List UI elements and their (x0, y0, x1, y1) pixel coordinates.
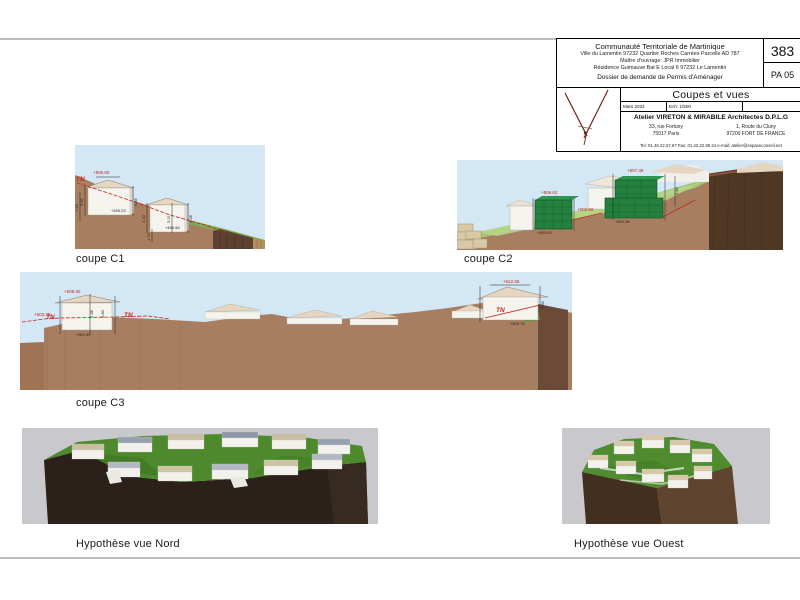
c3-dim-right: 4.80 (541, 301, 545, 308)
c3-tn-label-2: TN (124, 312, 133, 319)
coupe-c2-drawing: +506.62 +500.03 +502.60 +507.38 +502.38 … (457, 160, 783, 250)
empty-meta-cell (743, 102, 800, 111)
c1-dim-3: 1.45 (75, 204, 79, 211)
c2-elev-g1-base: +500.03 (537, 230, 552, 235)
sheet-code: PA 05 (764, 63, 800, 87)
coupe-c2-label: coupe C2 (464, 253, 513, 265)
office-paris-line2: 75017 Paris (621, 131, 711, 138)
c1-dim-5: 5.21 (167, 215, 171, 222)
c1-elev-top: +506.50 (93, 170, 110, 175)
c3-elev-left-base: +501.50 (76, 332, 91, 337)
sheet-title: Coupes et vues (621, 88, 800, 102)
vue-nord-label: Hypothèse vue Nord (76, 538, 180, 550)
date-cell: Mars 2024 (621, 102, 667, 111)
c3-elev-right-base: +505.73 (510, 321, 525, 326)
scale-cell: Ech: 1/500 (667, 102, 743, 111)
c3-tn-label-3: TN (496, 307, 505, 314)
sheet-bottom-edge (0, 557, 800, 559)
c2-elev-g2-base: +502.38 (615, 219, 630, 224)
coupe-c3-label: coupe C3 (76, 397, 125, 409)
office-paris: 33, rue Fortuny 75017 Paris (621, 124, 711, 141)
c1-dim-7: 1.70 (147, 233, 151, 240)
c2-elev-g1-top: +506.62 (541, 190, 558, 195)
c2-elev-mid: +502.60 (577, 207, 594, 212)
coupe-c1-drawing: +506.50 TN +499.23 +496.56 5.52 5.35 1.4… (75, 145, 265, 249)
coupe-c3-drawing: +508.30 +503.30 TN TN +501.50 1.36 4.80 … (20, 272, 572, 390)
c3-elev-right-top: +512.56 (503, 279, 520, 284)
office-fdf-line2: 97200 FORT DE FRANCE (711, 131, 800, 138)
dividers-logo-icon (557, 88, 619, 149)
architect-logo (557, 88, 621, 151)
org-name: Communauté Territoriale de Martinique (557, 42, 763, 51)
coupe-c1-label: coupe C1 (76, 253, 125, 265)
title-block-right: Coupes et vues Mars 2024 Ech: 1/500 Atel… (621, 88, 800, 151)
vue-ouest-drawing (562, 428, 770, 524)
site-address: Ville du Lamentin 97232 Quartier Roches … (557, 51, 763, 58)
sheet-top-edge (0, 38, 557, 40)
c1-dim-6: 4.56 (189, 215, 193, 222)
c3-dim-left-1: 1.36 (90, 310, 94, 317)
contact-line: Tel: 01.46.22.67.67 Fax: 01.42.22.89.24 … (621, 141, 800, 151)
c1-elev-base1: +499.23 (111, 208, 126, 213)
c3-dim-left-2: 4.80 (101, 310, 105, 317)
c1-dim-4: 4.40 (142, 215, 146, 222)
owner: Maître d'ouvrage: JPR Immobilier (557, 58, 763, 65)
vue-nord-drawing (22, 428, 378, 524)
c2-elev-g2-top: +507.38 (627, 168, 644, 173)
c1-tn-label: TN (76, 176, 85, 183)
c2-dim-1: 2.64 (675, 187, 679, 194)
title-block-header-row: Communauté Territoriale de Martinique Vi… (557, 39, 800, 88)
c3-tn-label-1: TN (46, 314, 55, 321)
title-block-lower-row: Coupes et vues Mars 2024 Ech: 1/500 Atel… (557, 88, 800, 151)
office-addresses: 33, rue Fortuny 75017 Paris 1, Route du … (621, 124, 800, 141)
project-info-cell: Communauté Territoriale de Martinique Vi… (557, 39, 763, 87)
c1-dim-1: 5.52 (80, 198, 84, 205)
dossier-type: Dossier de demande de Permis d'Aménager (557, 74, 763, 82)
sheet-number: 383 (764, 39, 800, 63)
title-block: Communauté Territoriale de Martinique Vi… (556, 38, 800, 152)
vue-ouest-label: Hypothèse vue Ouest (574, 538, 684, 550)
meta-row: Mars 2024 Ech: 1/500 (621, 102, 800, 112)
architect-name: Atelier VIRETON & MIRABILE Architectes D… (621, 112, 800, 124)
c1-elev-base2: +496.56 (165, 225, 180, 230)
office-fdf-line1: 1, Route du Cluny (711, 124, 800, 131)
office-paris-line1: 33, rue Fortuny (621, 124, 711, 131)
c3-elev-left-top: +508.30 (64, 289, 81, 294)
office-fdf: 1, Route du Cluny 97200 FORT DE FRANCE (711, 124, 800, 141)
sheet-number-column: 383 PA 05 (763, 39, 800, 87)
c1-dim-2: 5.35 (134, 198, 138, 205)
owner-address: Résidence Guimauve Bat E Local 6 97232 L… (557, 65, 763, 72)
